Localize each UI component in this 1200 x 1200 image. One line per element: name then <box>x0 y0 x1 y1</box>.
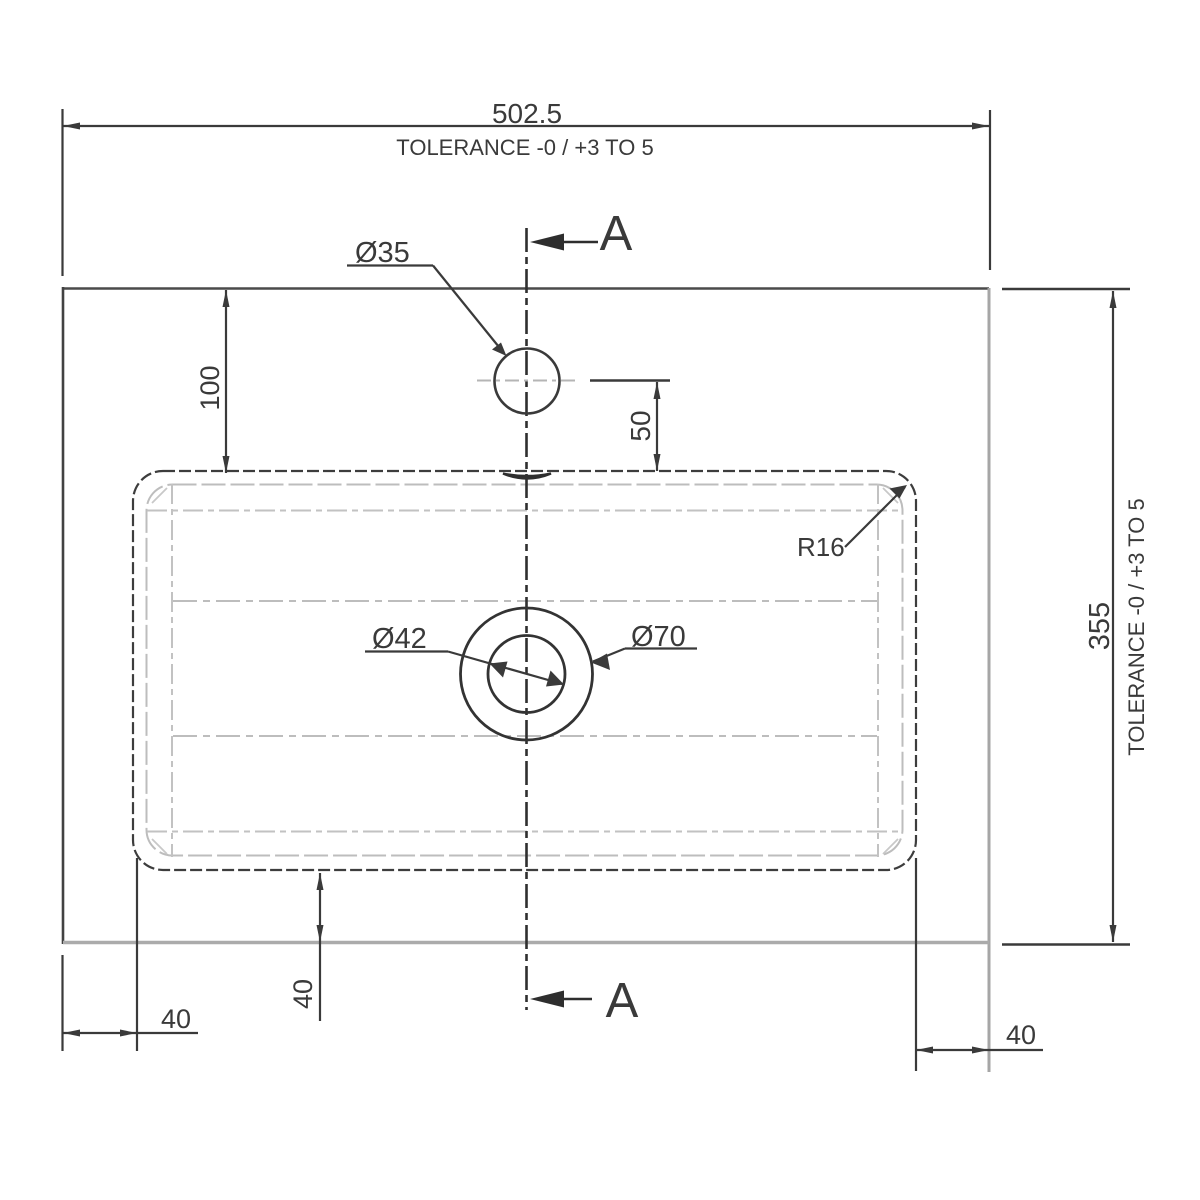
svg-text:40: 40 <box>161 1004 191 1034</box>
svg-text:100: 100 <box>195 365 225 410</box>
svg-text:A: A <box>600 207 633 261</box>
svg-text:Ø42: Ø42 <box>372 623 427 655</box>
svg-text:A: A <box>606 974 639 1028</box>
svg-text:40: 40 <box>1006 1020 1036 1050</box>
svg-text:Ø35: Ø35 <box>355 237 410 269</box>
svg-text:40: 40 <box>288 979 318 1009</box>
svg-text:TOLERANCE -0 / +3 TO 5: TOLERANCE -0 / +3 TO 5 <box>396 135 653 160</box>
svg-text:TOLERANCE -0 / +3 TO 5: TOLERANCE -0 / +3 TO 5 <box>1124 498 1149 755</box>
svg-text:R16: R16 <box>797 532 845 562</box>
svg-text:355: 355 <box>1084 602 1116 650</box>
svg-text:50: 50 <box>625 410 656 441</box>
svg-text:502.5: 502.5 <box>492 98 562 129</box>
